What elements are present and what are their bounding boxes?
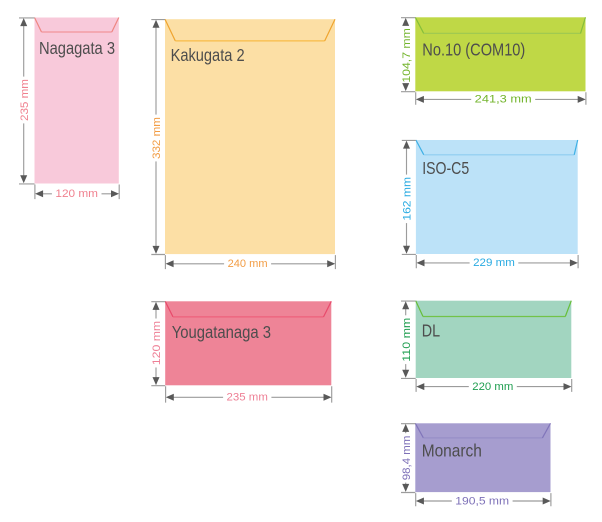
svg-text:Yougatanaga 3: Yougatanaga 3: [172, 322, 271, 342]
svg-text:Kakugata 2: Kakugata 2: [171, 45, 245, 65]
svg-text:162 mm: 162 mm: [402, 177, 414, 221]
svg-text:220 mm: 220 mm: [472, 381, 513, 393]
svg-text:190,5 mm: 190,5 mm: [455, 495, 509, 507]
svg-text:104,7 mm: 104,7 mm: [401, 28, 413, 83]
svg-text:110 mm: 110 mm: [401, 318, 413, 362]
svg-text:332 mm: 332 mm: [151, 117, 163, 159]
svg-text:No.10 (COM10): No.10 (COM10): [422, 40, 525, 60]
svg-text:120 mm: 120 mm: [151, 321, 163, 365]
svg-text:ISO-C5: ISO-C5: [422, 158, 469, 178]
svg-text:235 mm: 235 mm: [227, 392, 268, 404]
svg-text:229 mm: 229 mm: [473, 257, 515, 269]
svg-text:240 mm: 240 mm: [228, 258, 268, 270]
svg-text:98,4 mm: 98,4 mm: [401, 436, 413, 481]
svg-text:Nagagata 3: Nagagata 3: [39, 38, 115, 58]
svg-text:DL: DL: [422, 321, 441, 341]
svg-text:120 mm: 120 mm: [55, 188, 98, 200]
svg-text:235 mm: 235 mm: [19, 79, 31, 121]
svg-text:241,3 mm: 241,3 mm: [475, 94, 532, 106]
svg-text:Monarch: Monarch: [422, 440, 482, 460]
